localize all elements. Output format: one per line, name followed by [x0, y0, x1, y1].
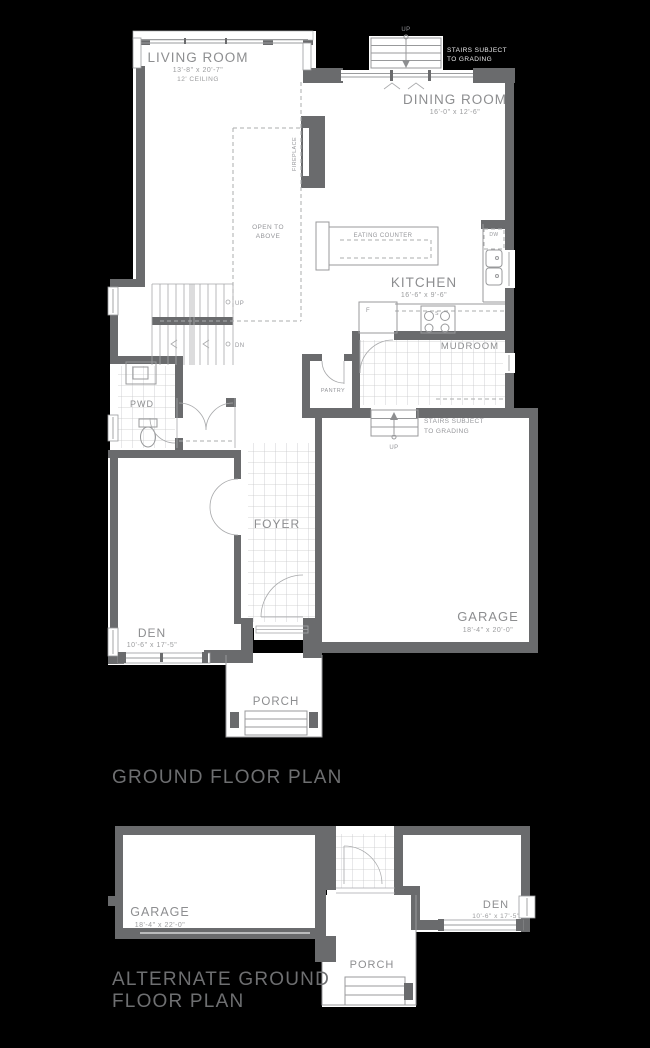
alternate-floor-plan: PORCH GARAGE 18'-4" x 22'-0" DEN 10'-6" … — [108, 826, 535, 1012]
fridge-label: F — [366, 308, 370, 314]
living-room-label: LIVING ROOM — [147, 50, 248, 65]
open-to-above-line1: OPEN TO — [252, 224, 284, 231]
foyer-label: FOYER — [254, 517, 300, 531]
living-room-note: 12' CEILING — [177, 76, 219, 83]
floor-plan-svg: UP STAIRS SUBJECT TO GRADING FIREPLACE O… — [0, 0, 650, 1048]
porch-label: PORCH — [253, 696, 300, 708]
alt-foyer-tiles — [336, 834, 394, 888]
open-to-above-line2: ABOVE — [256, 233, 281, 240]
stairs-up-label: UP — [235, 301, 244, 307]
alt-porch-label: PORCH — [350, 959, 395, 971]
alt-den-label: DEN — [483, 899, 509, 911]
alternate-title-line2: FLOOR PLAN — [112, 991, 244, 1012]
ground-floor-plan: UP STAIRS SUBJECT TO GRADING FIREPLACE O… — [108, 27, 538, 788]
den-label: DEN — [138, 626, 166, 640]
alt-garage-label: GARAGE — [130, 905, 190, 919]
stove-label: S — [435, 311, 439, 317]
garage-label: GARAGE — [457, 609, 519, 624]
kitchen-dims: 16'-6" x 9'-6" — [401, 292, 447, 299]
stairs-top-note-1: STAIRS SUBJECT — [447, 47, 507, 54]
pwd-label: PWD — [130, 399, 154, 409]
stairs-mud-up-label: UP — [389, 445, 398, 451]
floor-plan-page: UP STAIRS SUBJECT TO GRADING FIREPLACE O… — [0, 0, 650, 1048]
fireplace-label: FIREPLACE — [292, 137, 298, 171]
stairs-dn-label: DN — [235, 343, 244, 349]
garage-dims: 18'-4" x 20'-0" — [463, 627, 514, 634]
dishwasher-label: DW — [489, 232, 498, 238]
kitchen-label: KITCHEN — [391, 275, 457, 290]
stairs-top-up-label: UP — [401, 27, 410, 33]
den-dims: 10'-6" x 17'-5" — [127, 642, 178, 649]
alt-garage-dims: 18'-4" x 22'-0" — [135, 922, 186, 929]
stairs-mud-note-2: TO GRADING — [424, 428, 469, 435]
dining-room-dims: 16'-0" x 12'-6" — [430, 109, 481, 116]
alt-den-dims: 10'-6" x 17'-5" — [472, 913, 520, 920]
stairs-top-note-2: TO GRADING — [447, 56, 492, 63]
stairs-mud-note-1: STAIRS SUBJECT — [424, 418, 484, 425]
eating-counter-label: EATING COUNTER — [354, 233, 413, 239]
ground-floor-title: GROUND FLOOR PLAN — [112, 767, 343, 788]
pantry-label: PANTRY — [321, 388, 345, 394]
alternate-title-line1: ALTERNATE GROUND — [112, 969, 330, 990]
dining-room-label: DINING ROOM — [403, 92, 507, 107]
living-room-dims: 13'-8" x 20'-7" — [173, 67, 224, 74]
mudroom-label: MUDROOM — [441, 341, 499, 352]
